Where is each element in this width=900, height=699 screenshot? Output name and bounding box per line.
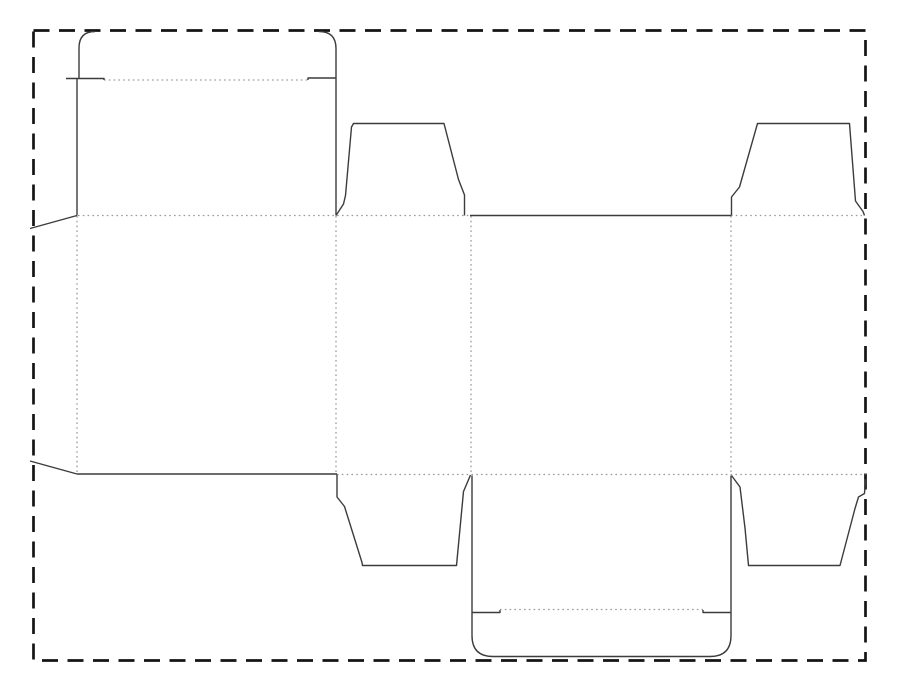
dust-flap-top-right-outline — [732, 124, 865, 216]
dieline-drawing — [0, 0, 900, 699]
dieline-canvas — [0, 0, 900, 699]
top-tuck-flap-notch-right — [308, 78, 336, 80]
glue-flap-bottom-diagonal — [30, 461, 77, 474]
dust-flap-bottom-right-outline — [732, 476, 866, 566]
bottom-flap-notch-left — [472, 610, 500, 613]
dust-flap-bottom-left-outline — [337, 475, 471, 566]
top-tuck-flap-notch-left — [66, 79, 104, 81]
top-tuck-flap-right-edge — [319, 32, 336, 216]
bottom-closure-flap-outline — [472, 476, 731, 657]
top-tuck-flap-left-edge — [79, 32, 95, 79]
bottom-flap-notch-right — [703, 610, 731, 613]
glue-flap-top-diagonal — [30, 216, 77, 229]
dust-flap-top-left-outline — [336, 124, 465, 216]
